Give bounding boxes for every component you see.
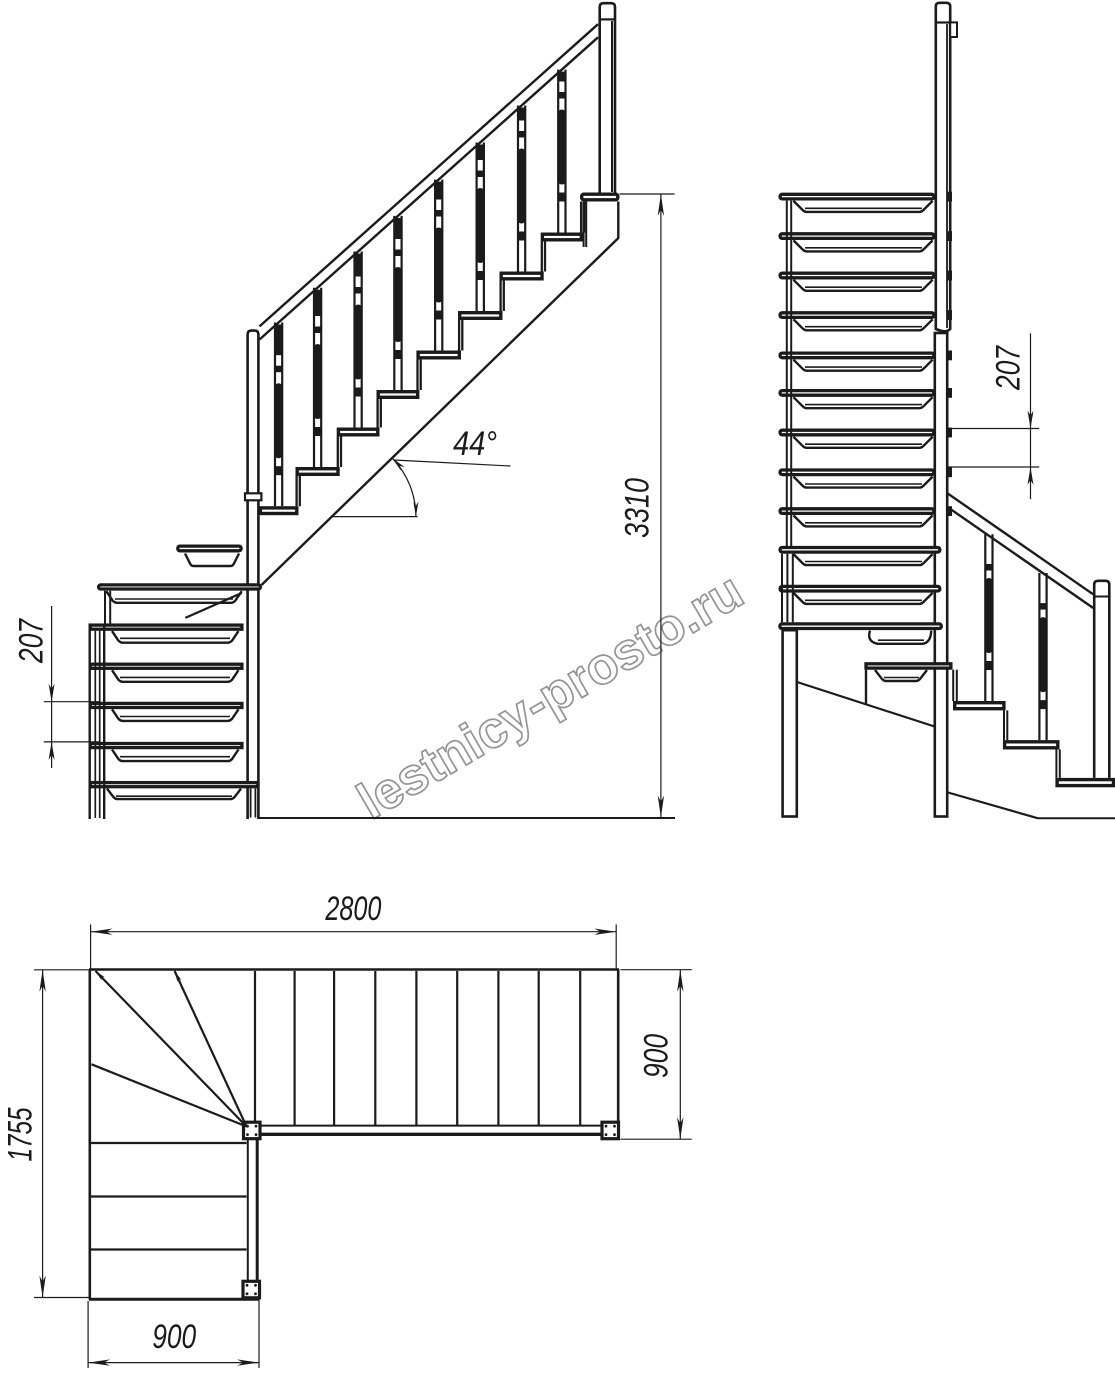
svg-text:207: 207 bbox=[13, 618, 51, 664]
svg-text:44°: 44° bbox=[453, 425, 497, 463]
svg-text:900: 900 bbox=[638, 1034, 676, 1078]
svg-text:207: 207 bbox=[990, 345, 1028, 391]
svg-text:2800: 2800 bbox=[325, 890, 382, 928]
svg-text:1755: 1755 bbox=[2, 1107, 40, 1161]
svg-text:3310: 3310 bbox=[619, 478, 657, 538]
svg-text:900: 900 bbox=[152, 1318, 196, 1356]
